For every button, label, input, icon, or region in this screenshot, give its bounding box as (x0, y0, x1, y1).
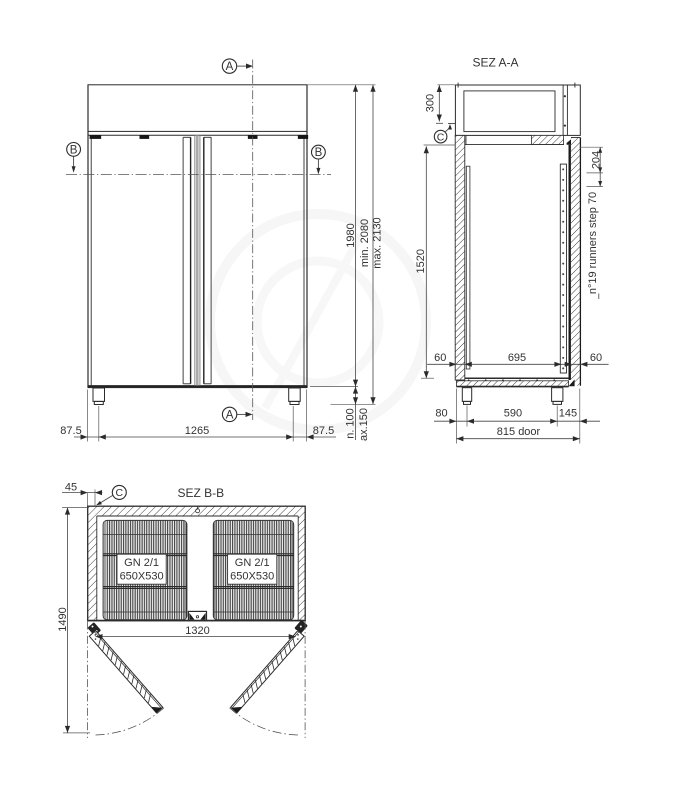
svg-text:A: A (226, 410, 234, 422)
svg-text:60: 60 (590, 352, 602, 364)
svg-text:204: 204 (590, 151, 602, 169)
svg-text:SEZ B-B: SEZ B-B (177, 486, 224, 500)
svg-text:60: 60 (434, 352, 446, 364)
svg-text:C: C (437, 131, 445, 143)
svg-text:n°19 runners step 70: n°19 runners step 70 (587, 192, 599, 294)
svg-text:max. 2130: max. 2130 (371, 217, 383, 268)
svg-text:87.5: 87.5 (313, 425, 334, 437)
svg-text:80: 80 (435, 407, 447, 419)
svg-text:n. 100: n. 100 (344, 408, 356, 439)
svg-text:1980: 1980 (345, 223, 357, 247)
svg-text:GN 2/1: GN 2/1 (235, 557, 270, 569)
svg-text:650X530: 650X530 (120, 571, 164, 583)
svg-text:590: 590 (504, 407, 522, 419)
svg-text:SEZ A-A: SEZ A-A (472, 56, 518, 70)
svg-text:GN 2/1: GN 2/1 (124, 557, 159, 569)
svg-text:815 door: 815 door (497, 426, 541, 438)
svg-text:1320: 1320 (185, 625, 209, 637)
svg-text:45: 45 (65, 481, 77, 493)
svg-text:1490: 1490 (57, 607, 69, 631)
svg-text:1520: 1520 (415, 249, 427, 273)
svg-text:min. 2080: min. 2080 (359, 219, 371, 267)
svg-text:ax.150: ax.150 (358, 408, 370, 441)
svg-text:1265: 1265 (185, 425, 209, 437)
svg-text:A: A (226, 61, 234, 73)
svg-text:145: 145 (559, 407, 577, 419)
svg-text:C: C (116, 487, 124, 499)
svg-text:300: 300 (425, 94, 437, 112)
svg-text:650X530: 650X530 (230, 571, 274, 583)
svg-text:B: B (70, 144, 78, 156)
svg-text:695: 695 (508, 352, 526, 364)
svg-text:B: B (315, 147, 323, 159)
svg-text:87.5: 87.5 (60, 425, 81, 437)
